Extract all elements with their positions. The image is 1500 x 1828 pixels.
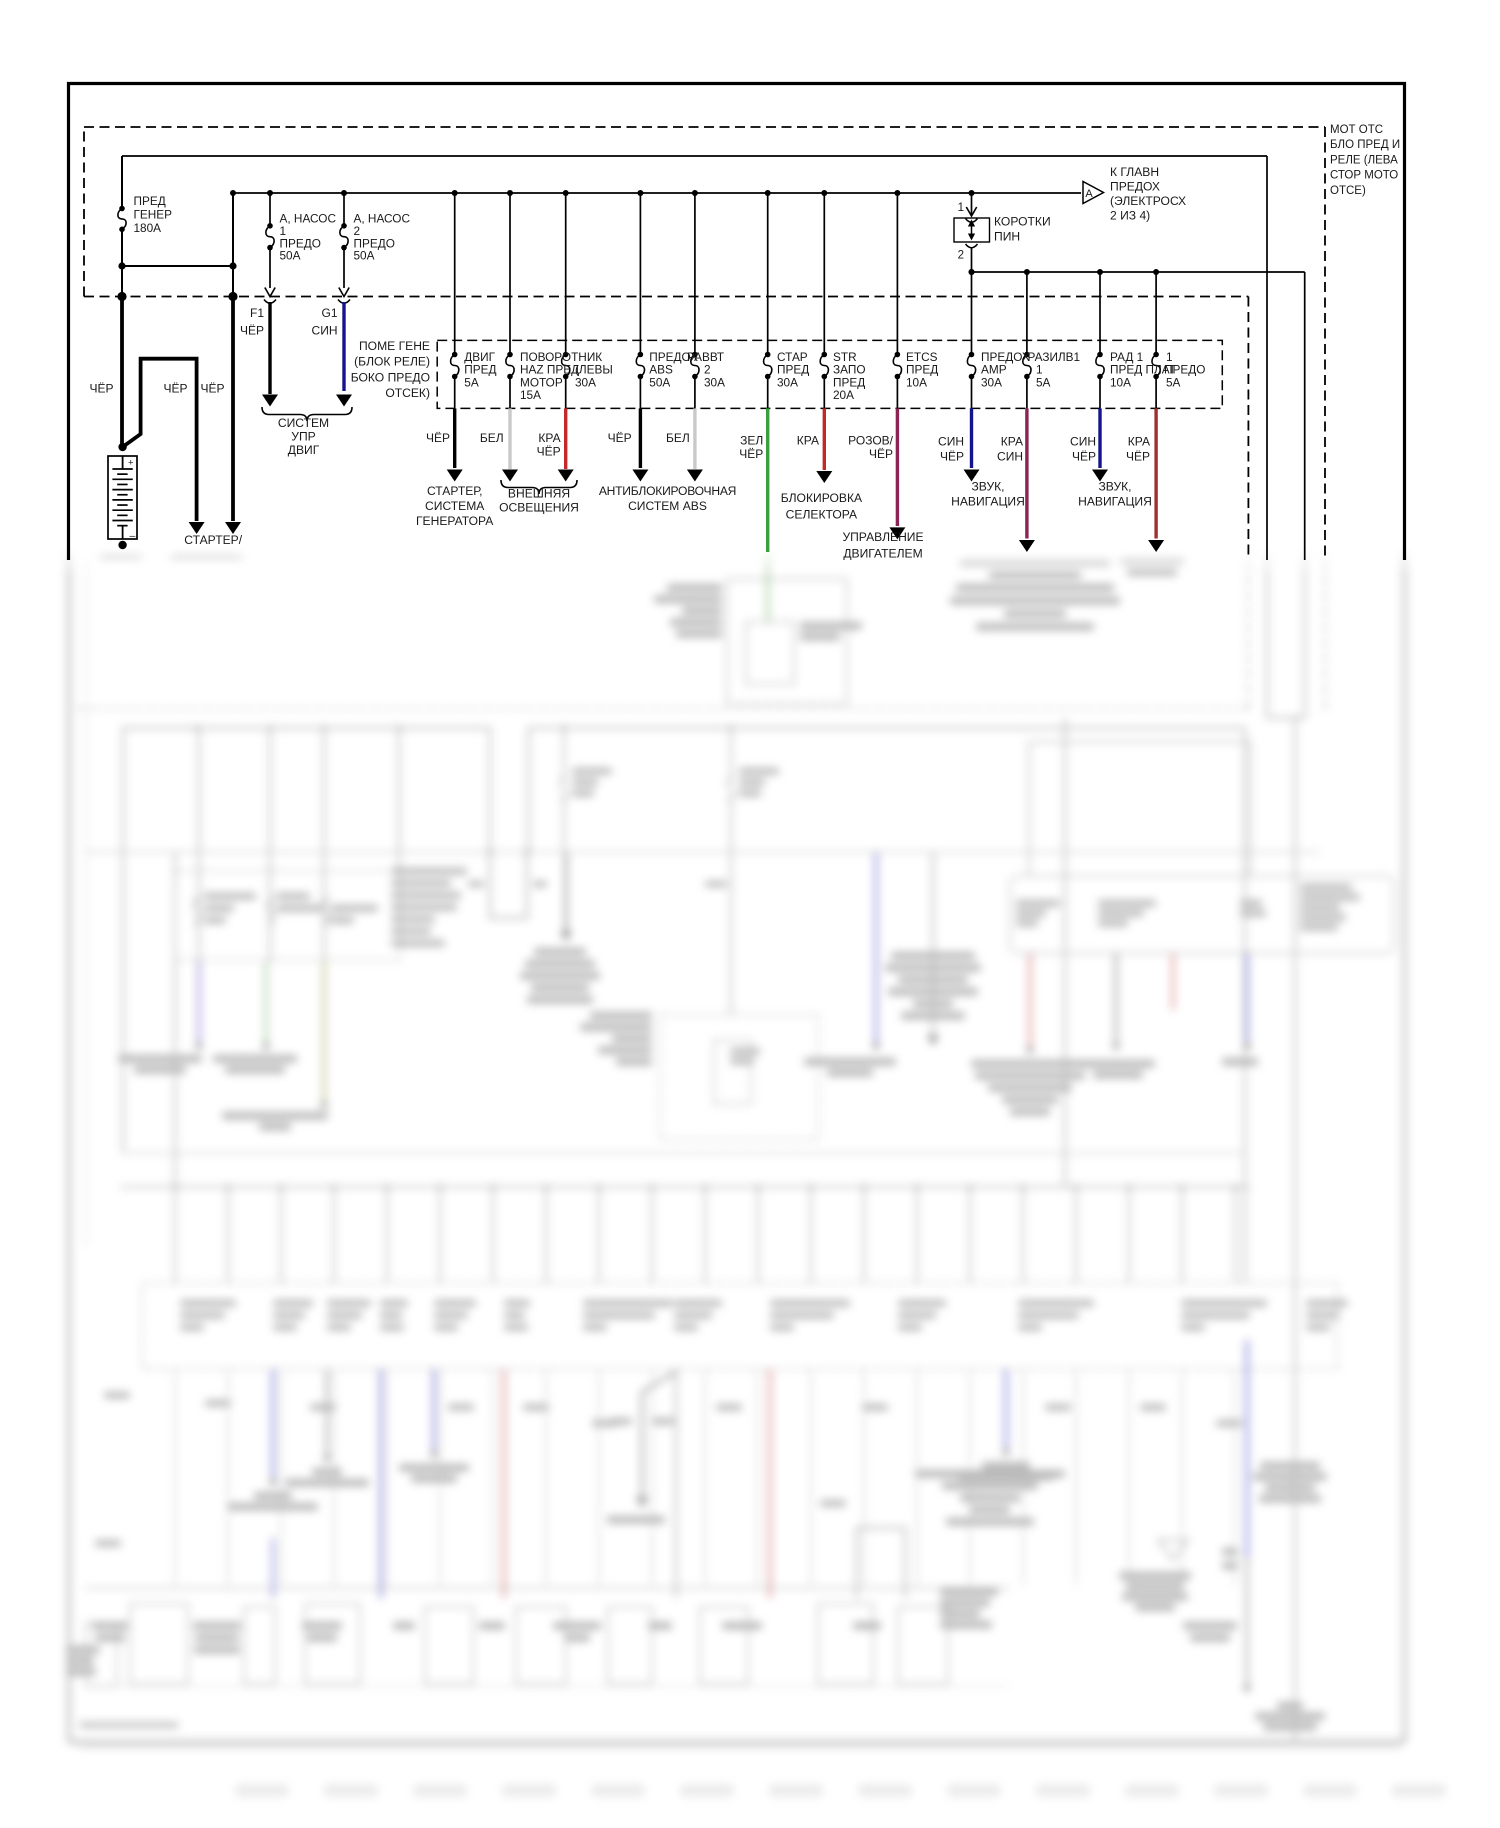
svg-text:ЧЁР: ЧЁР [200,382,224,396]
svg-text:5А: 5А [1036,375,1051,389]
svg-text:НАВИГАЦИЯ: НАВИГАЦИЯ [951,495,1025,509]
svg-text:СТОР МОТО: СТОР МОТО [1330,170,1398,182]
svg-text:ЧЁР: ЧЁР [426,431,450,445]
svg-text:СИН: СИН [1070,435,1096,449]
svg-text:БЕЛ: БЕЛ [480,431,504,445]
svg-text:СИСТЕМ ABS: СИСТЕМ ABS [628,499,707,513]
svg-text:БОКО ПРЕДО: БОКО ПРЕДО [351,370,430,384]
svg-text:20А: 20А [833,388,854,402]
svg-text:А, НАСОС: А, НАСОС [280,212,337,226]
svg-text:ОТСЕ): ОТСЕ) [1330,185,1366,197]
svg-text:ЧЁР: ЧЁР [240,324,264,338]
svg-text:ЧЁР: ЧЁР [1072,450,1096,464]
svg-text:ЧЁР: ЧЁР [163,382,187,396]
svg-text:2: 2 [958,250,964,262]
svg-text:1: 1 [958,202,964,214]
svg-text:1: 1 [1166,350,1173,364]
svg-text:30А: 30А [575,375,596,389]
svg-text:ЧЁР: ЧЁР [869,447,893,461]
svg-text:СТАРТЕР,: СТАРТЕР, [427,484,483,498]
svg-text:БЛОКИРОВКА: БЛОКИРОВКА [781,491,863,505]
svg-text:ПИН: ПИН [994,229,1020,243]
svg-text:50А: 50А [649,375,670,389]
svg-text:ПРЕДОХ: ПРЕДОХ [1110,180,1160,194]
svg-text:2 ИЗ 4): 2 ИЗ 4) [1110,209,1150,223]
svg-text:СИН: СИН [312,324,338,338]
svg-text:50А: 50А [354,249,375,263]
svg-text:ЧЁР: ЧЁР [1126,450,1150,464]
svg-text:БЛО ПРЕД И: БЛО ПРЕД И [1330,139,1400,151]
svg-text:5А: 5А [1166,375,1181,389]
svg-text:РОЗОВ/: РОЗОВ/ [848,433,894,447]
svg-text:50А: 50А [280,249,301,263]
svg-text:ЗВУК,: ЗВУК, [1098,479,1131,493]
svg-text:УПРАВЛЕНИЕ: УПРАВЛЕНИЕ [842,530,923,544]
svg-text:КОРОТКИ: КОРОТКИ [994,215,1051,229]
svg-text:МОТ ОТС: МОТ ОТС [1330,124,1383,136]
svg-text:ГЕНЕРАТОРА: ГЕНЕРАТОРА [416,514,494,528]
svg-text:А, НАСОС: А, НАСОС [354,212,411,226]
svg-text:10А: 10А [1110,375,1131,389]
svg-text:А: А [1085,188,1093,200]
svg-text:ДВИГ: ДВИГ [288,443,320,457]
svg-text:15А: 15А [520,388,541,402]
svg-text:БЕЛ: БЕЛ [666,431,690,445]
svg-text:КРА: КРА [538,431,560,445]
svg-text:G1: G1 [321,306,337,320]
svg-text:СИСТЕМ: СИСТЕМ [278,416,329,430]
svg-text:10А: 10А [906,375,927,389]
svg-text:ЧЁР: ЧЁР [537,445,561,459]
svg-text:30А: 30А [777,375,798,389]
svg-text:ПОМЕ ГЕНЕ: ПОМЕ ГЕНЕ [359,339,430,353]
svg-text:ЧЁР: ЧЁР [608,431,632,445]
svg-text:ЗВУК,: ЗВУК, [971,479,1004,493]
svg-text:СТАРТЕР/: СТАРТЕР/ [184,533,242,547]
svg-text:ЗЕЛ: ЗЕЛ [740,433,763,447]
svg-text:(БЛОК РЕЛЕ): (БЛОК РЕЛЕ) [354,355,430,369]
svg-text:5А: 5А [464,375,479,389]
svg-text:F1: F1 [250,306,264,320]
svg-text:(ЭЛЕКТРОСХ: (ЭЛЕКТРОСХ [1110,194,1186,208]
svg-text:УПР: УПР [291,430,315,444]
svg-text:ВНЕШНЯЯ: ВНЕШНЯЯ [508,486,570,500]
svg-text:РЕЛЕ (ЛЕВА: РЕЛЕ (ЛЕВА [1330,154,1398,166]
svg-text:АНТИБЛОКИРОВОЧНАЯ: АНТИБЛОКИРОВОЧНАЯ [599,484,736,498]
svg-text:ЧЁР: ЧЁР [940,450,964,464]
svg-text:ПРЕД: ПРЕД [134,194,166,208]
svg-text:СИСТЕМА: СИСТЕМА [425,499,485,513]
svg-text:КРА: КРА [1001,435,1023,449]
svg-text:КРА: КРА [1128,435,1150,449]
svg-text:НАВИГАЦИЯ: НАВИГАЦИЯ [1078,495,1152,509]
svg-text:СИН: СИН [997,450,1023,464]
svg-text:СЕЛЕКТОРА: СЕЛЕКТОРА [786,508,858,522]
svg-text:ГЕНЕР: ГЕНЕР [134,208,173,222]
svg-text:ЧЁР: ЧЁР [739,447,763,461]
svg-text:+: + [128,458,134,469]
svg-text:30А: 30А [704,375,725,389]
svg-text:К ГЛАВН: К ГЛАВН [1110,165,1159,179]
svg-text:–: – [130,530,136,542]
svg-text:ЧЁР: ЧЁР [89,382,113,396]
svg-text:СИН: СИН [938,435,964,449]
svg-text:180А: 180А [134,221,162,235]
svg-text:КРА: КРА [797,433,819,447]
svg-text:ОСВЕЩЕНИЯ: ОСВЕЩЕНИЯ [499,500,579,514]
svg-text:30А: 30А [981,375,1002,389]
svg-text:ОТСЕК): ОТСЕК) [385,386,430,400]
svg-text:ДВИГАТЕЛЕМ: ДВИГАТЕЛЕМ [843,547,922,561]
